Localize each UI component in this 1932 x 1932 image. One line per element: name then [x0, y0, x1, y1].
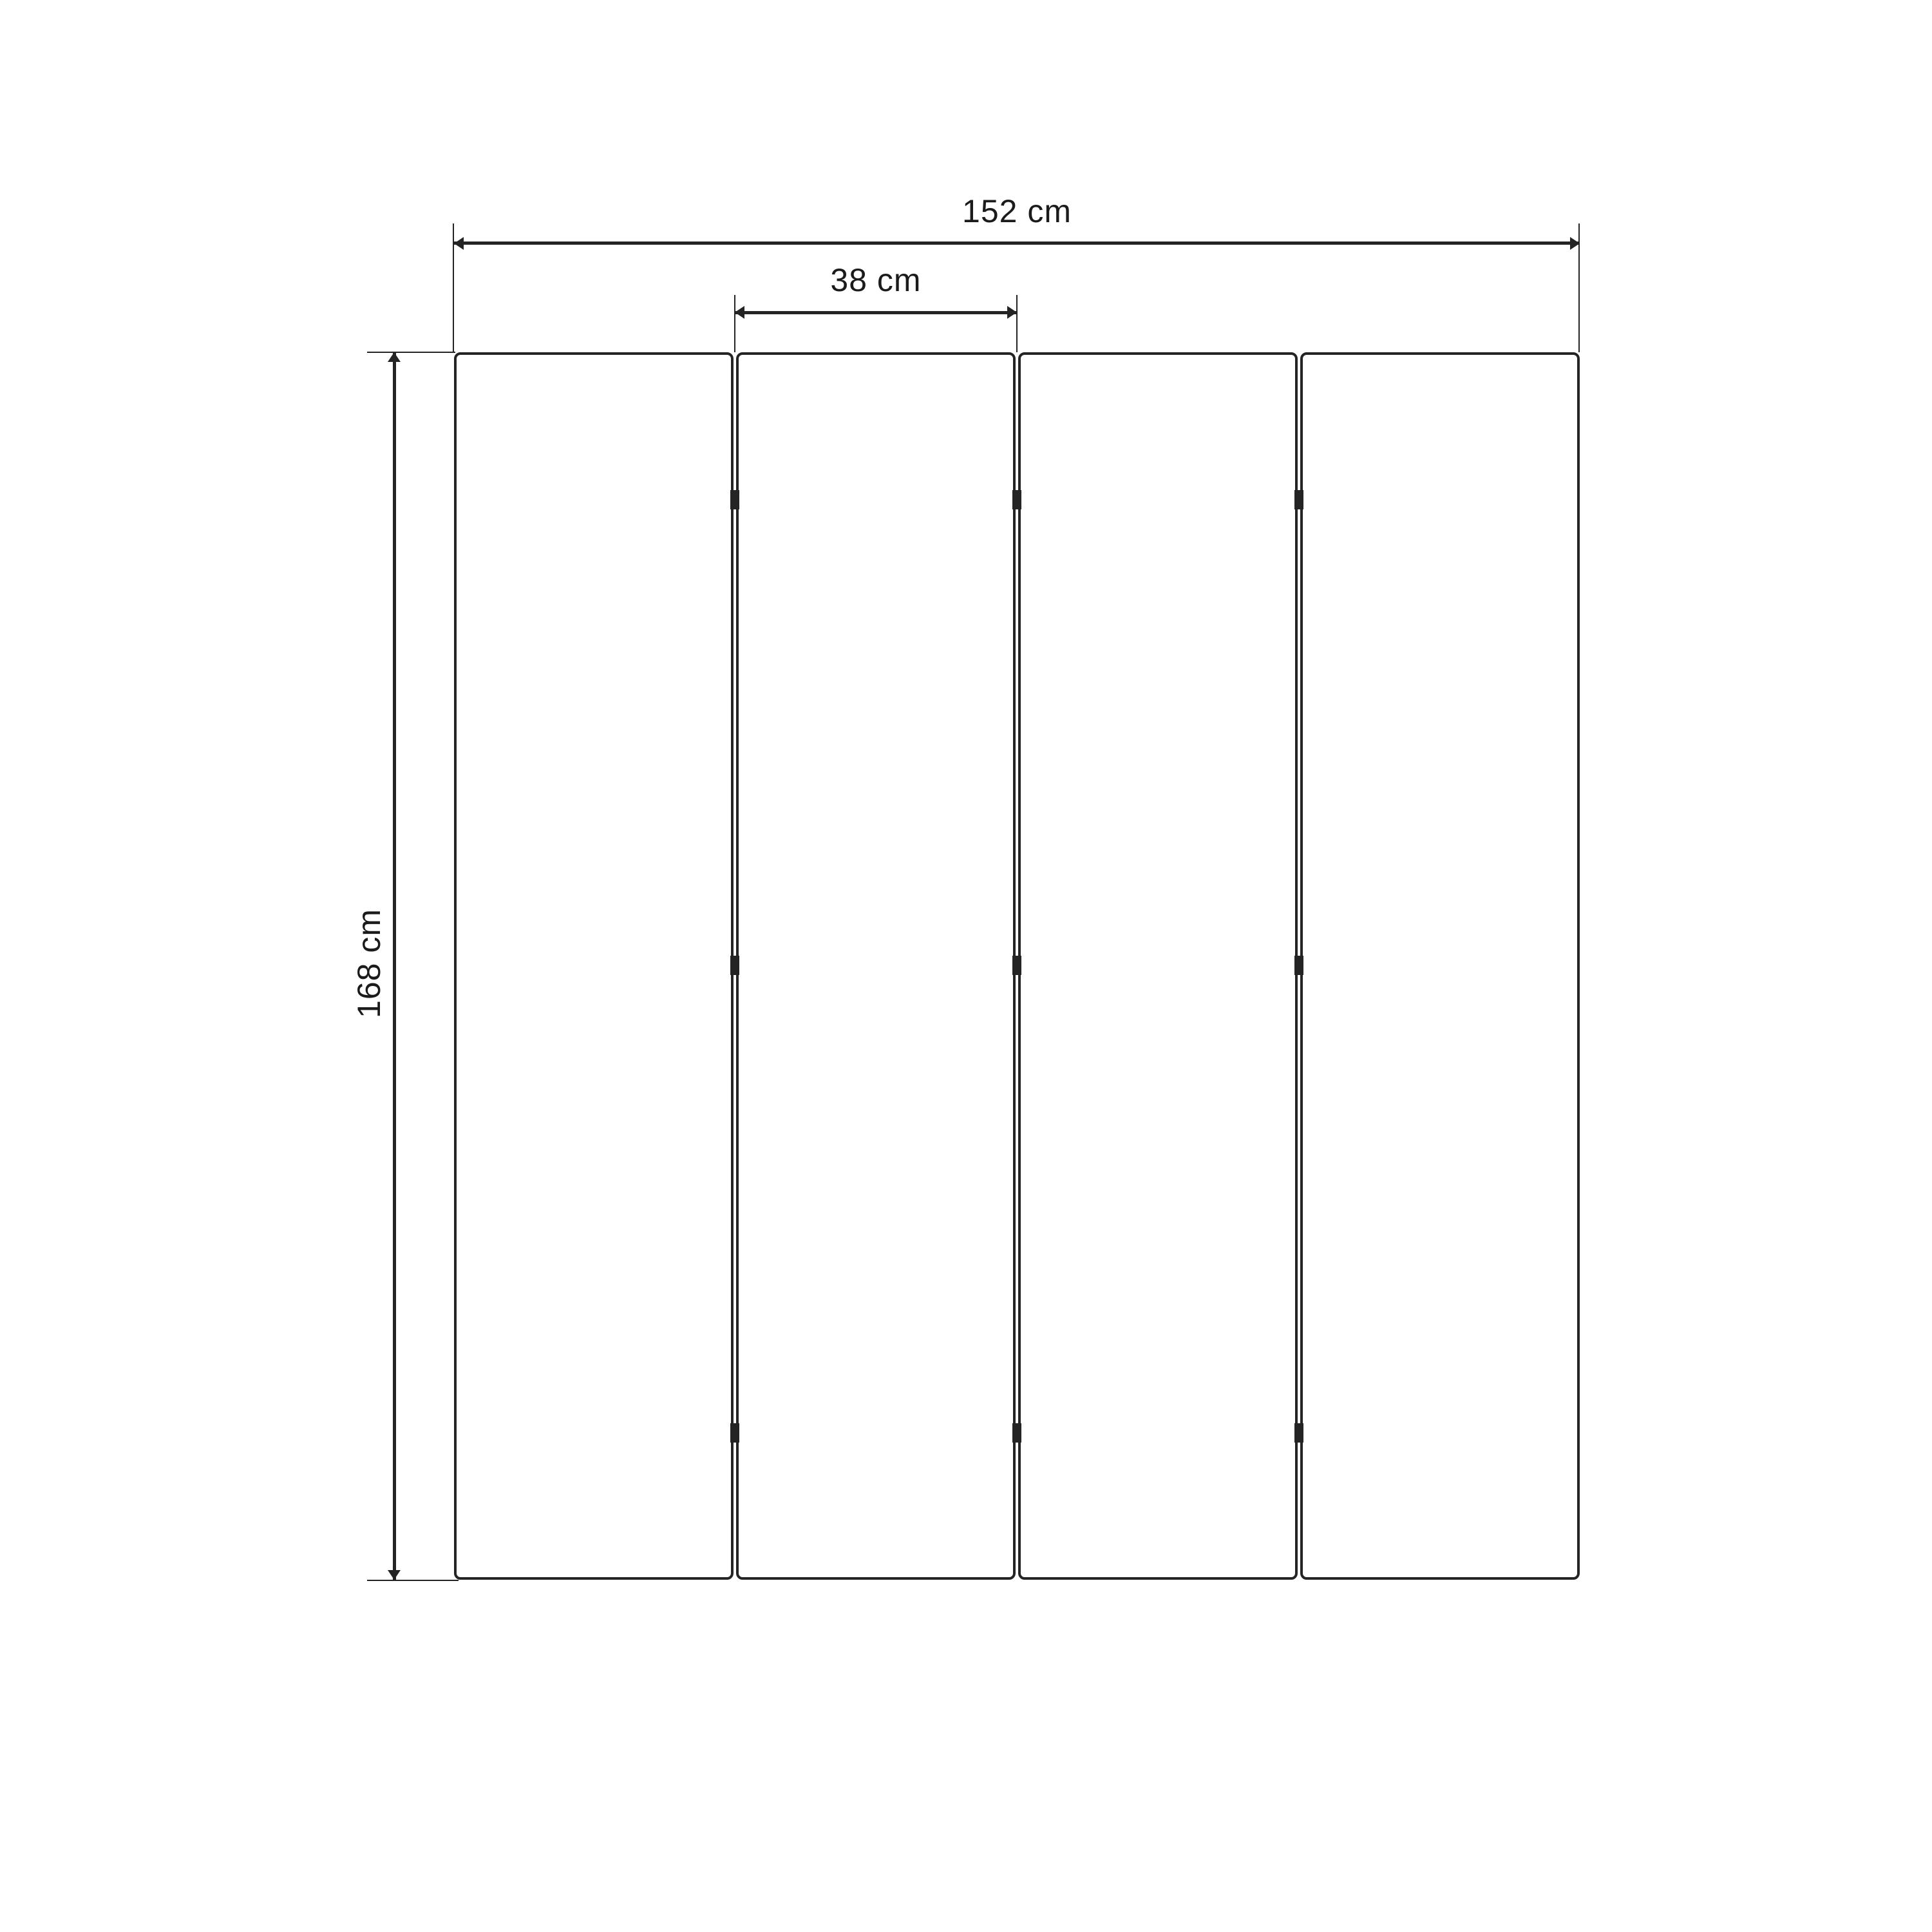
panel-width-dimension-line	[735, 311, 1017, 314]
arrow-down-icon	[388, 1570, 401, 1580]
panel-width-extension-line-right	[1016, 295, 1018, 352]
panel-3	[1018, 352, 1298, 1580]
arrow-right-icon	[1007, 306, 1017, 319]
panel-width-extension-line-left	[734, 295, 735, 352]
panel-2	[736, 352, 1016, 1580]
height-dimension-line	[393, 352, 396, 1580]
hinge-icon	[1294, 490, 1303, 509]
hinge-icon	[1012, 1423, 1021, 1443]
height-extension-line-bottom	[367, 1580, 459, 1581]
arrow-left-icon	[735, 306, 744, 319]
total-width-extension-line-left	[453, 223, 454, 352]
hinge-icon	[1294, 1423, 1303, 1443]
hinge-icon	[730, 490, 739, 509]
total-width-dimension-label: 152 cm	[454, 195, 1580, 227]
height-extension-line-top	[367, 352, 455, 353]
hinge-icon	[1294, 956, 1303, 975]
panel-width-dimension-label: 38 cm	[735, 264, 1017, 296]
hinge-icon	[730, 956, 739, 975]
arrow-up-icon	[388, 352, 401, 362]
hinge-icon	[1012, 956, 1021, 975]
folding-screen-diagram: 152 cm 38 cm 168 cm	[0, 0, 1932, 1932]
arrow-left-icon	[454, 237, 464, 250]
panel-4	[1300, 352, 1580, 1580]
total-width-extension-line-right	[1578, 223, 1580, 352]
panel-1	[454, 352, 734, 1580]
total-width-dimension-line	[454, 241, 1580, 245]
hinge-icon	[730, 1423, 739, 1443]
hinge-icon	[1012, 490, 1021, 509]
